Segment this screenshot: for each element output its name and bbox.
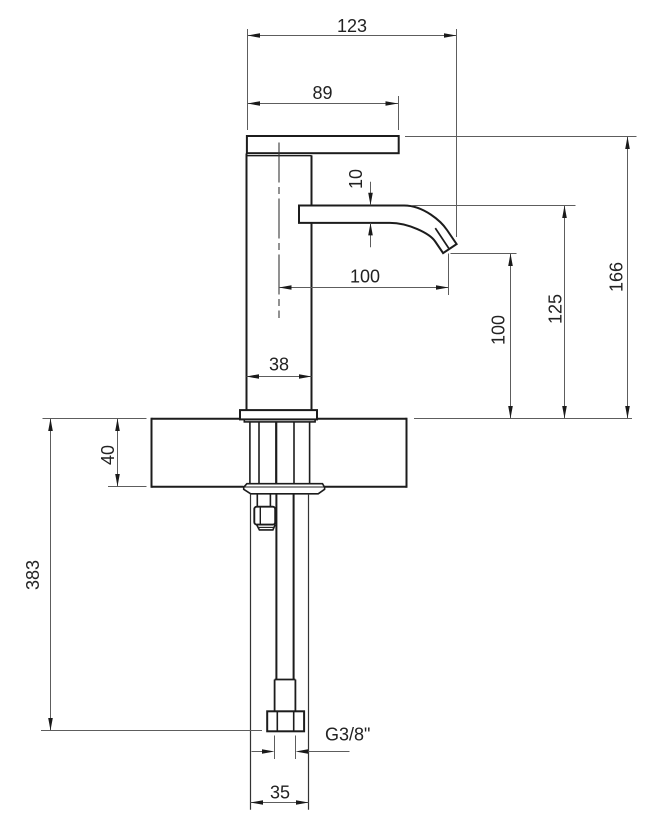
svg-text:100: 100	[489, 315, 509, 345]
svg-text:10: 10	[346, 169, 366, 189]
svg-text:123: 123	[337, 16, 367, 36]
svg-text:G3/8": G3/8"	[325, 724, 370, 744]
svg-text:89: 89	[312, 83, 332, 103]
svg-text:125: 125	[546, 294, 566, 324]
svg-text:383: 383	[23, 560, 43, 590]
svg-text:100: 100	[350, 267, 380, 287]
svg-text:35: 35	[270, 783, 290, 803]
svg-text:40: 40	[98, 445, 118, 465]
svg-text:166: 166	[606, 262, 626, 292]
svg-text:38: 38	[269, 355, 289, 375]
